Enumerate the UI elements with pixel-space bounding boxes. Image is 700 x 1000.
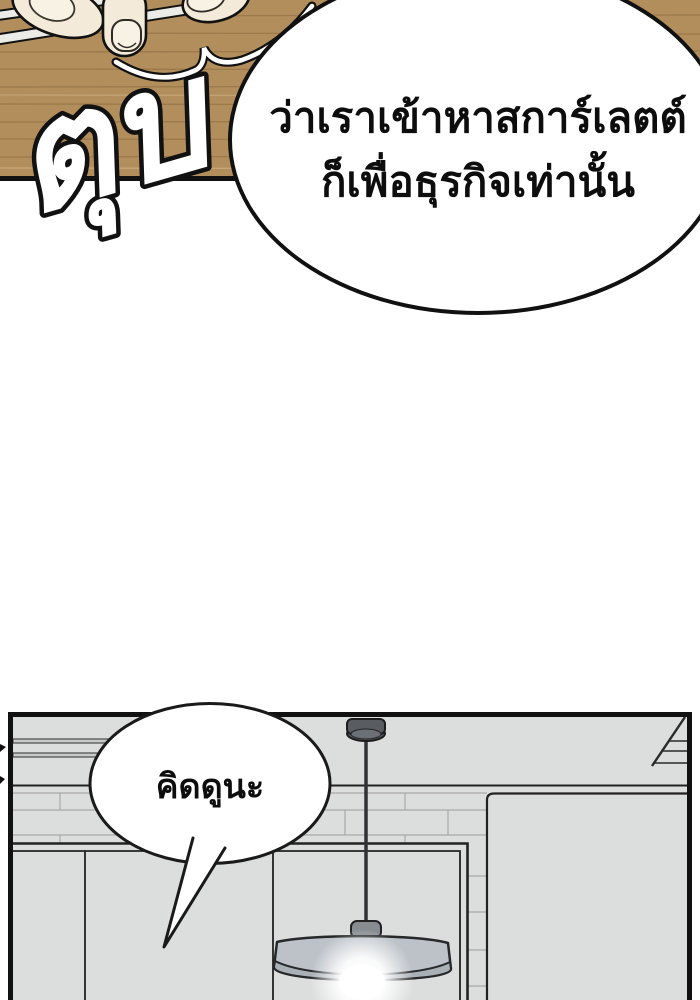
stray-marks: [0, 744, 6, 784]
lamp-canopy-underside: [351, 729, 381, 739]
speech-text-line2: ก็เพื่อธุรกิจเท่านั้น: [321, 150, 635, 214]
speech-text: คิดดูนะ: [156, 767, 264, 808]
panel-bottom: คิดดูนะ: [0, 698, 700, 1000]
comic-page: { "page": { "width": 700, "height": 1000…: [0, 0, 700, 1000]
speech-text-line1: ว่าเราเข้าหาสการ์เลตต์: [269, 86, 686, 150]
light-bulb: [339, 964, 385, 1000]
